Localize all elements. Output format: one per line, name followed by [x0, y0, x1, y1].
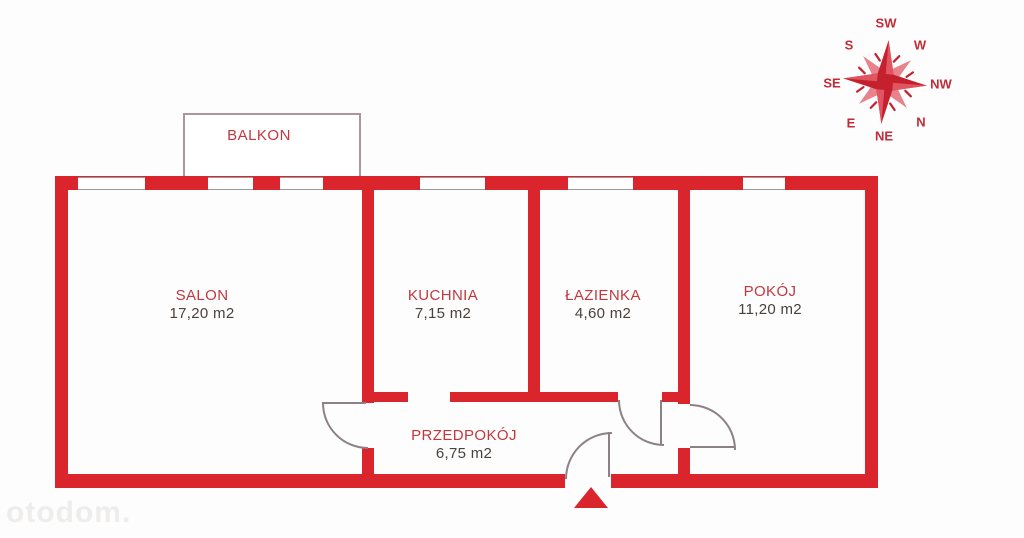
window-balcony-door-left	[208, 177, 253, 190]
room-name: KUCHNIA	[408, 287, 478, 305]
room-label-lazienka: ŁAZIENKA 4,60 m2	[565, 287, 641, 323]
room-area: 4,60 m2	[565, 305, 641, 323]
compass-label-right: NW	[930, 77, 952, 92]
room-label-kuchnia: KUCHNIA 7,15 m2	[408, 287, 478, 323]
wall-lazienka-pokoj	[678, 190, 690, 404]
room-area: 17,20 m2	[170, 305, 235, 323]
room-label-salon: SALON 17,20 m2	[170, 287, 235, 323]
entrance-marker-icon	[574, 487, 608, 508]
door-arc-salon	[322, 403, 368, 449]
window-salon	[78, 177, 145, 190]
compass-label-bottom-right: N	[916, 115, 925, 130]
window-balcony-door-right	[280, 177, 323, 190]
compass-label-top: SW	[876, 16, 897, 31]
door-arc-lazienka	[618, 400, 664, 446]
wall-bottom-left-segment	[55, 474, 565, 488]
compass-label-bottom-left: E	[847, 116, 856, 131]
compass-label-bottom: NE	[875, 129, 893, 144]
wall-hallway-segment-1	[362, 392, 408, 402]
room-name: ŁAZIENKA	[565, 287, 641, 305]
room-label-pokoj: POKÓJ 11,20 m2	[738, 283, 802, 319]
watermark: otodom.	[6, 496, 131, 530]
compass-label-top-right: W	[914, 38, 926, 53]
room-label-przedpokoj: PRZEDPOKÓJ 6,75 m2	[411, 427, 517, 463]
wall-salon-kuchnia-stub	[362, 448, 374, 474]
door-leaf-salon	[322, 402, 366, 404]
window-kuchnia	[420, 177, 485, 190]
floor-plan: BALKON SALON 17,20 m2 KUCHNIA 7,15 m2 ŁA…	[0, 0, 1024, 538]
window-lazienka	[568, 177, 633, 190]
room-name: POKÓJ	[738, 283, 802, 301]
wall-left	[55, 176, 68, 488]
window-pokoj	[743, 177, 785, 190]
wall-kuchnia-lazienka	[528, 190, 540, 402]
door-leaf-lazienka	[660, 400, 662, 444]
room-area: 6,75 m2	[411, 445, 517, 463]
room-name: SALON	[170, 287, 235, 305]
balcony-label: BALKON	[227, 127, 291, 144]
wall-lazienka-pokoj-stub	[678, 448, 690, 474]
door-arc-entrance	[565, 432, 612, 479]
wall-salon-kuchnia	[362, 190, 374, 403]
compass-label-left: SE	[823, 76, 840, 91]
room-area: 11,20 m2	[738, 301, 802, 319]
compass-label-top-left: S	[845, 38, 854, 53]
wall-hallway-segment-2	[450, 392, 618, 402]
room-area: 7,15 m2	[408, 305, 478, 323]
room-name: PRZEDPOKÓJ	[411, 427, 517, 445]
balcony-outline	[183, 113, 361, 179]
door-leaf-pokoj	[690, 446, 734, 448]
door-arc-pokoj	[690, 404, 736, 450]
door-leaf-entrance	[608, 432, 610, 477]
wall-right	[865, 176, 878, 488]
wall-bottom-right-segment	[611, 474, 878, 488]
wall-hallway-segment-3	[662, 392, 690, 402]
